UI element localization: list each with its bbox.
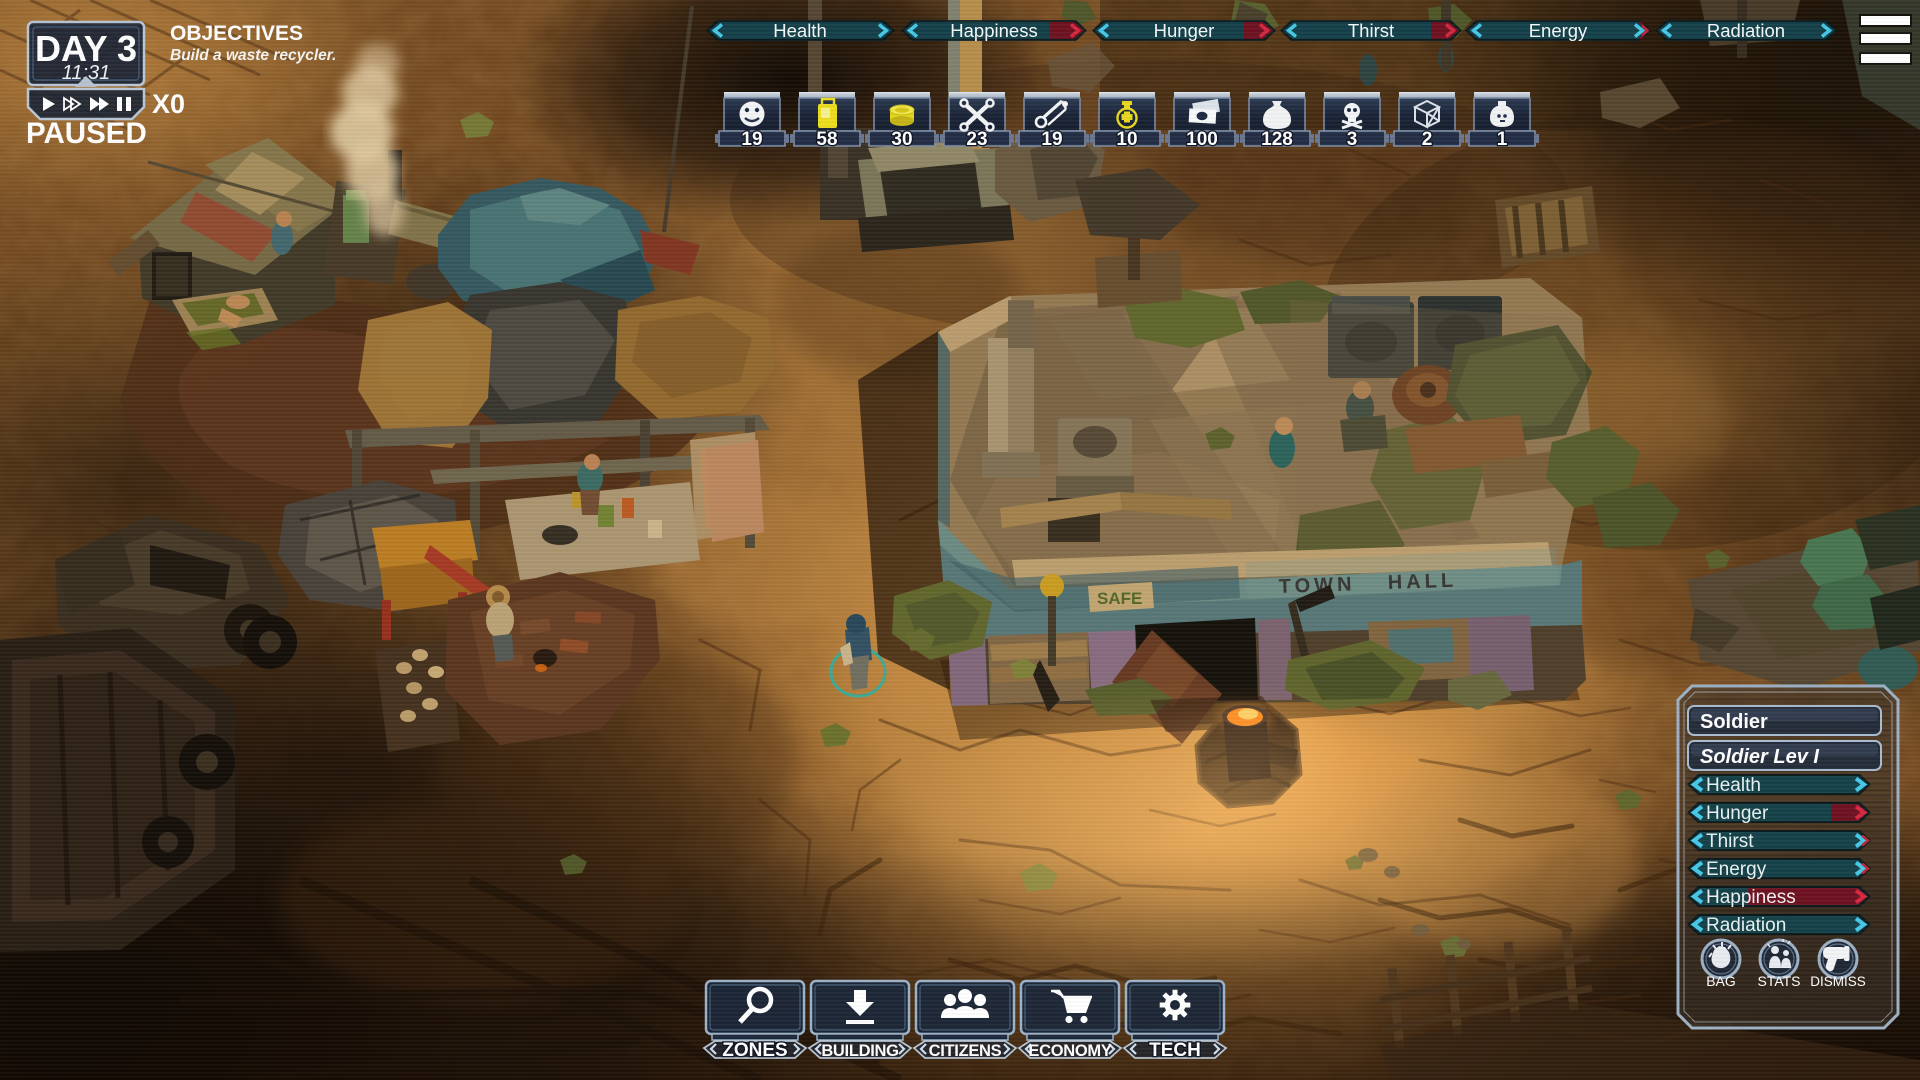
svg-text:Energy: Energy bbox=[1529, 20, 1588, 41]
svg-text:2: 2 bbox=[1422, 129, 1433, 150]
svg-text:CITIZENS: CITIZENS bbox=[929, 1042, 1002, 1060]
svg-text:Health: Health bbox=[773, 20, 826, 41]
svg-text:DISMISS: DISMISS bbox=[1810, 974, 1866, 989]
svg-text:Happiness: Happiness bbox=[1706, 887, 1796, 908]
svg-text:Energy: Energy bbox=[1706, 859, 1767, 880]
svg-text:Radiation: Radiation bbox=[1706, 915, 1786, 936]
svg-text:X0: X0 bbox=[152, 89, 185, 119]
svg-text:Radiation: Radiation bbox=[1707, 20, 1785, 41]
svg-text:ECONOMY: ECONOMY bbox=[1028, 1042, 1111, 1060]
svg-text:Hunger: Hunger bbox=[1154, 20, 1215, 41]
svg-text:PAUSED: PAUSED bbox=[26, 117, 147, 150]
svg-text:100: 100 bbox=[1186, 129, 1218, 150]
svg-text:ZONES: ZONES bbox=[722, 1040, 787, 1061]
svg-text:BAG: BAG bbox=[1706, 973, 1736, 989]
svg-text:Soldier: Soldier bbox=[1700, 711, 1768, 733]
svg-text:1: 1 bbox=[1497, 129, 1508, 150]
svg-text:19: 19 bbox=[741, 129, 762, 150]
svg-text:Health: Health bbox=[1706, 775, 1761, 796]
svg-text:OBJECTIVES: OBJECTIVES bbox=[170, 22, 303, 45]
svg-text:Happiness: Happiness bbox=[950, 20, 1037, 41]
svg-text:23: 23 bbox=[966, 129, 987, 150]
svg-text:3: 3 bbox=[1347, 129, 1358, 150]
svg-text:Thirst: Thirst bbox=[1348, 20, 1394, 41]
svg-text:Hunger: Hunger bbox=[1706, 803, 1769, 824]
svg-text:Thirst: Thirst bbox=[1706, 831, 1754, 852]
svg-text:Build a waste recycler.: Build a waste recycler. bbox=[170, 47, 336, 64]
svg-text:30: 30 bbox=[891, 129, 912, 150]
svg-text:TECH: TECH bbox=[1149, 1040, 1201, 1061]
svg-text:Soldier Lev I: Soldier Lev I bbox=[1700, 746, 1819, 768]
svg-text:19: 19 bbox=[1041, 129, 1062, 150]
svg-text:128: 128 bbox=[1261, 129, 1293, 150]
svg-text:STATS: STATS bbox=[1757, 973, 1800, 989]
svg-text:BUILDING: BUILDING bbox=[821, 1042, 898, 1060]
svg-text:58: 58 bbox=[816, 129, 837, 150]
svg-text:10: 10 bbox=[1116, 129, 1137, 150]
